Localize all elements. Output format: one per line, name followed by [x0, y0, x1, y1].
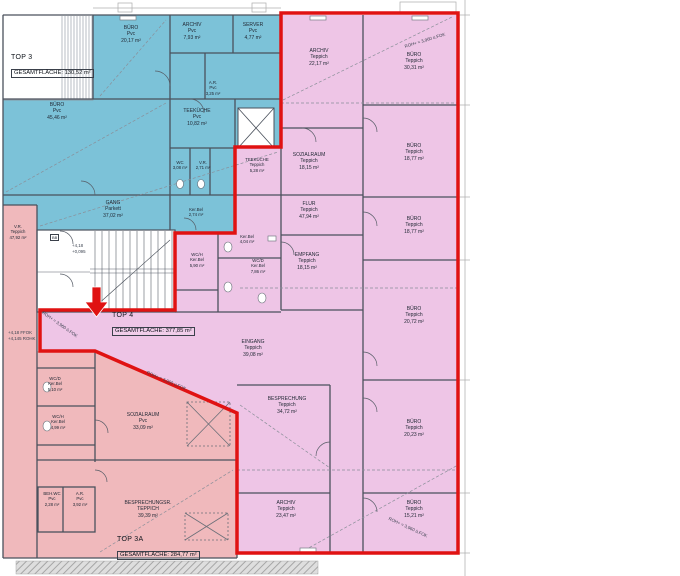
floor-plan: TOP 3 GESAMTFLÄCHE: 130,52 m² TOP 4 GESA…	[0, 0, 680, 576]
room-label-flur-4794: FLURTeppich47,94 m²	[299, 201, 319, 220]
room-label-wc-308: WC3,08 m²	[173, 160, 188, 171]
room-label-buero-2023: BÜROTeppich20,23 m²	[404, 419, 424, 438]
room-label-sozialraum-1815: SOZIALRAUMTeppich18,15 m²	[293, 152, 326, 171]
room-label-besprechung-3472: BESPRECHUNGTeppich34,72 m²	[268, 396, 307, 415]
ffok-annotation: +4,18 FFOK +4,145 ROHK	[8, 330, 35, 341]
room-label-empfang-1815: EMPFANGTeppich18,15 m²	[295, 252, 319, 271]
top3-name: TOP 3	[11, 54, 94, 61]
room-label-teekueche-1082: TEEKÜCHEPvc10,82 m²	[183, 108, 210, 127]
top3a-area: GESAMTFLÄCHE: 284,77 m²	[117, 551, 200, 560]
floor-plan-drawing	[0, 0, 680, 576]
room-label-sozialraum-3309: SOZIALRAUMPvc33,09 m²	[127, 412, 160, 431]
stairwell	[37, 230, 175, 312]
room-label-vr-4792: V.R.Teppich47,92 m²	[10, 224, 27, 240]
room-label-vr-271: V.R.2,71 m²	[196, 160, 211, 171]
room-label-ar-325: A.R.Pvc3,25 m²	[206, 80, 221, 96]
top4-title: TOP 4 GESAMTFLÄCHE: 377,85 m²	[112, 312, 195, 337]
room-label-vr-404: Ker.Bel4,04 m²	[240, 234, 255, 245]
room-label-buero-2017: BÜROPvc20,17 m²	[121, 25, 141, 44]
site-hatch-band	[16, 561, 318, 574]
room-label-buero-3031: BÜROTeppich30,31 m²	[404, 52, 424, 71]
room-label-server-477: SERVERPvc4,77 m²	[243, 22, 263, 41]
room-label-eingang-3908: EINGANGTeppich39,08 m²	[241, 339, 264, 358]
room-label-wc-d-510: WC/DKer.Bel5,10 m²	[48, 376, 63, 392]
bb-marker: BB	[50, 234, 59, 241]
room-label-buero-2072: BÜROTeppich20,72 m²	[404, 306, 424, 325]
room-label-besprechungsr-3939: BESPRECHUNGSR.TEPPICH39,39 m²	[125, 500, 172, 519]
top3-area: GESAMTFLÄCHE: 130,52 m²	[11, 69, 94, 78]
room-label-ar-392: A.R.Pvc3,92 m²	[73, 491, 88, 507]
top4-name: TOP 4	[112, 312, 195, 319]
room-label-archiv-2347: ARCHIVTeppich23,47 m²	[276, 500, 296, 519]
top3a-title: TOP 3A GESAMTFLÄCHE: 284,77 m²	[117, 536, 200, 561]
room-label-teekueche-528: TEEKÜCHETeppich5,28 m²	[245, 157, 268, 173]
room-label-buero-4546: BÜROPvc45,46 m²	[47, 102, 67, 121]
room-label-buero-1521: BÜROTeppich15,21 m²	[404, 500, 424, 519]
room-label-wc-274: Ker.Bel2,74 m²	[189, 207, 204, 218]
room-label-wc-h-499: WC/HKer.Bel4,99 m²	[51, 414, 66, 430]
top3a-name: TOP 3A	[117, 536, 200, 543]
room-label-gang-3702: GANGParkett37,02 m²	[103, 200, 123, 219]
ffok-line1: +4,18 FFOK	[8, 330, 35, 336]
room-label-archiv-793: ARCHIVPvc7,93 m²	[183, 22, 202, 41]
stair-level-bottom: +0,095	[72, 249, 86, 255]
room-label-wc-h-590: WC/HKer.Bel5,90 m²	[190, 252, 205, 268]
room-label-buero-1877a: BÜROTeppich18,77 m²	[404, 143, 424, 162]
room-label-wc-d-786: WC/DKer.Bel7,86 m²	[251, 258, 266, 274]
elevator-shaft	[238, 108, 274, 148]
stair-level-marks: +4,18 +0,095	[72, 243, 86, 254]
top3-title: TOP 3 GESAMTFLÄCHE: 130,52 m²	[11, 54, 94, 79]
room-label-archiv-2217: ARCHIVTeppich22,17 m²	[309, 48, 329, 67]
ffok-line2: +4,145 ROHK	[8, 336, 35, 342]
room-label-beh-wc-228: BEH.WCPvc2,28 m²	[43, 491, 60, 507]
room-label-buero-1877b: BÜROTeppich18,77 m²	[404, 216, 424, 235]
top4-area: GESAMTFLÄCHE: 377,85 m²	[112, 327, 195, 336]
